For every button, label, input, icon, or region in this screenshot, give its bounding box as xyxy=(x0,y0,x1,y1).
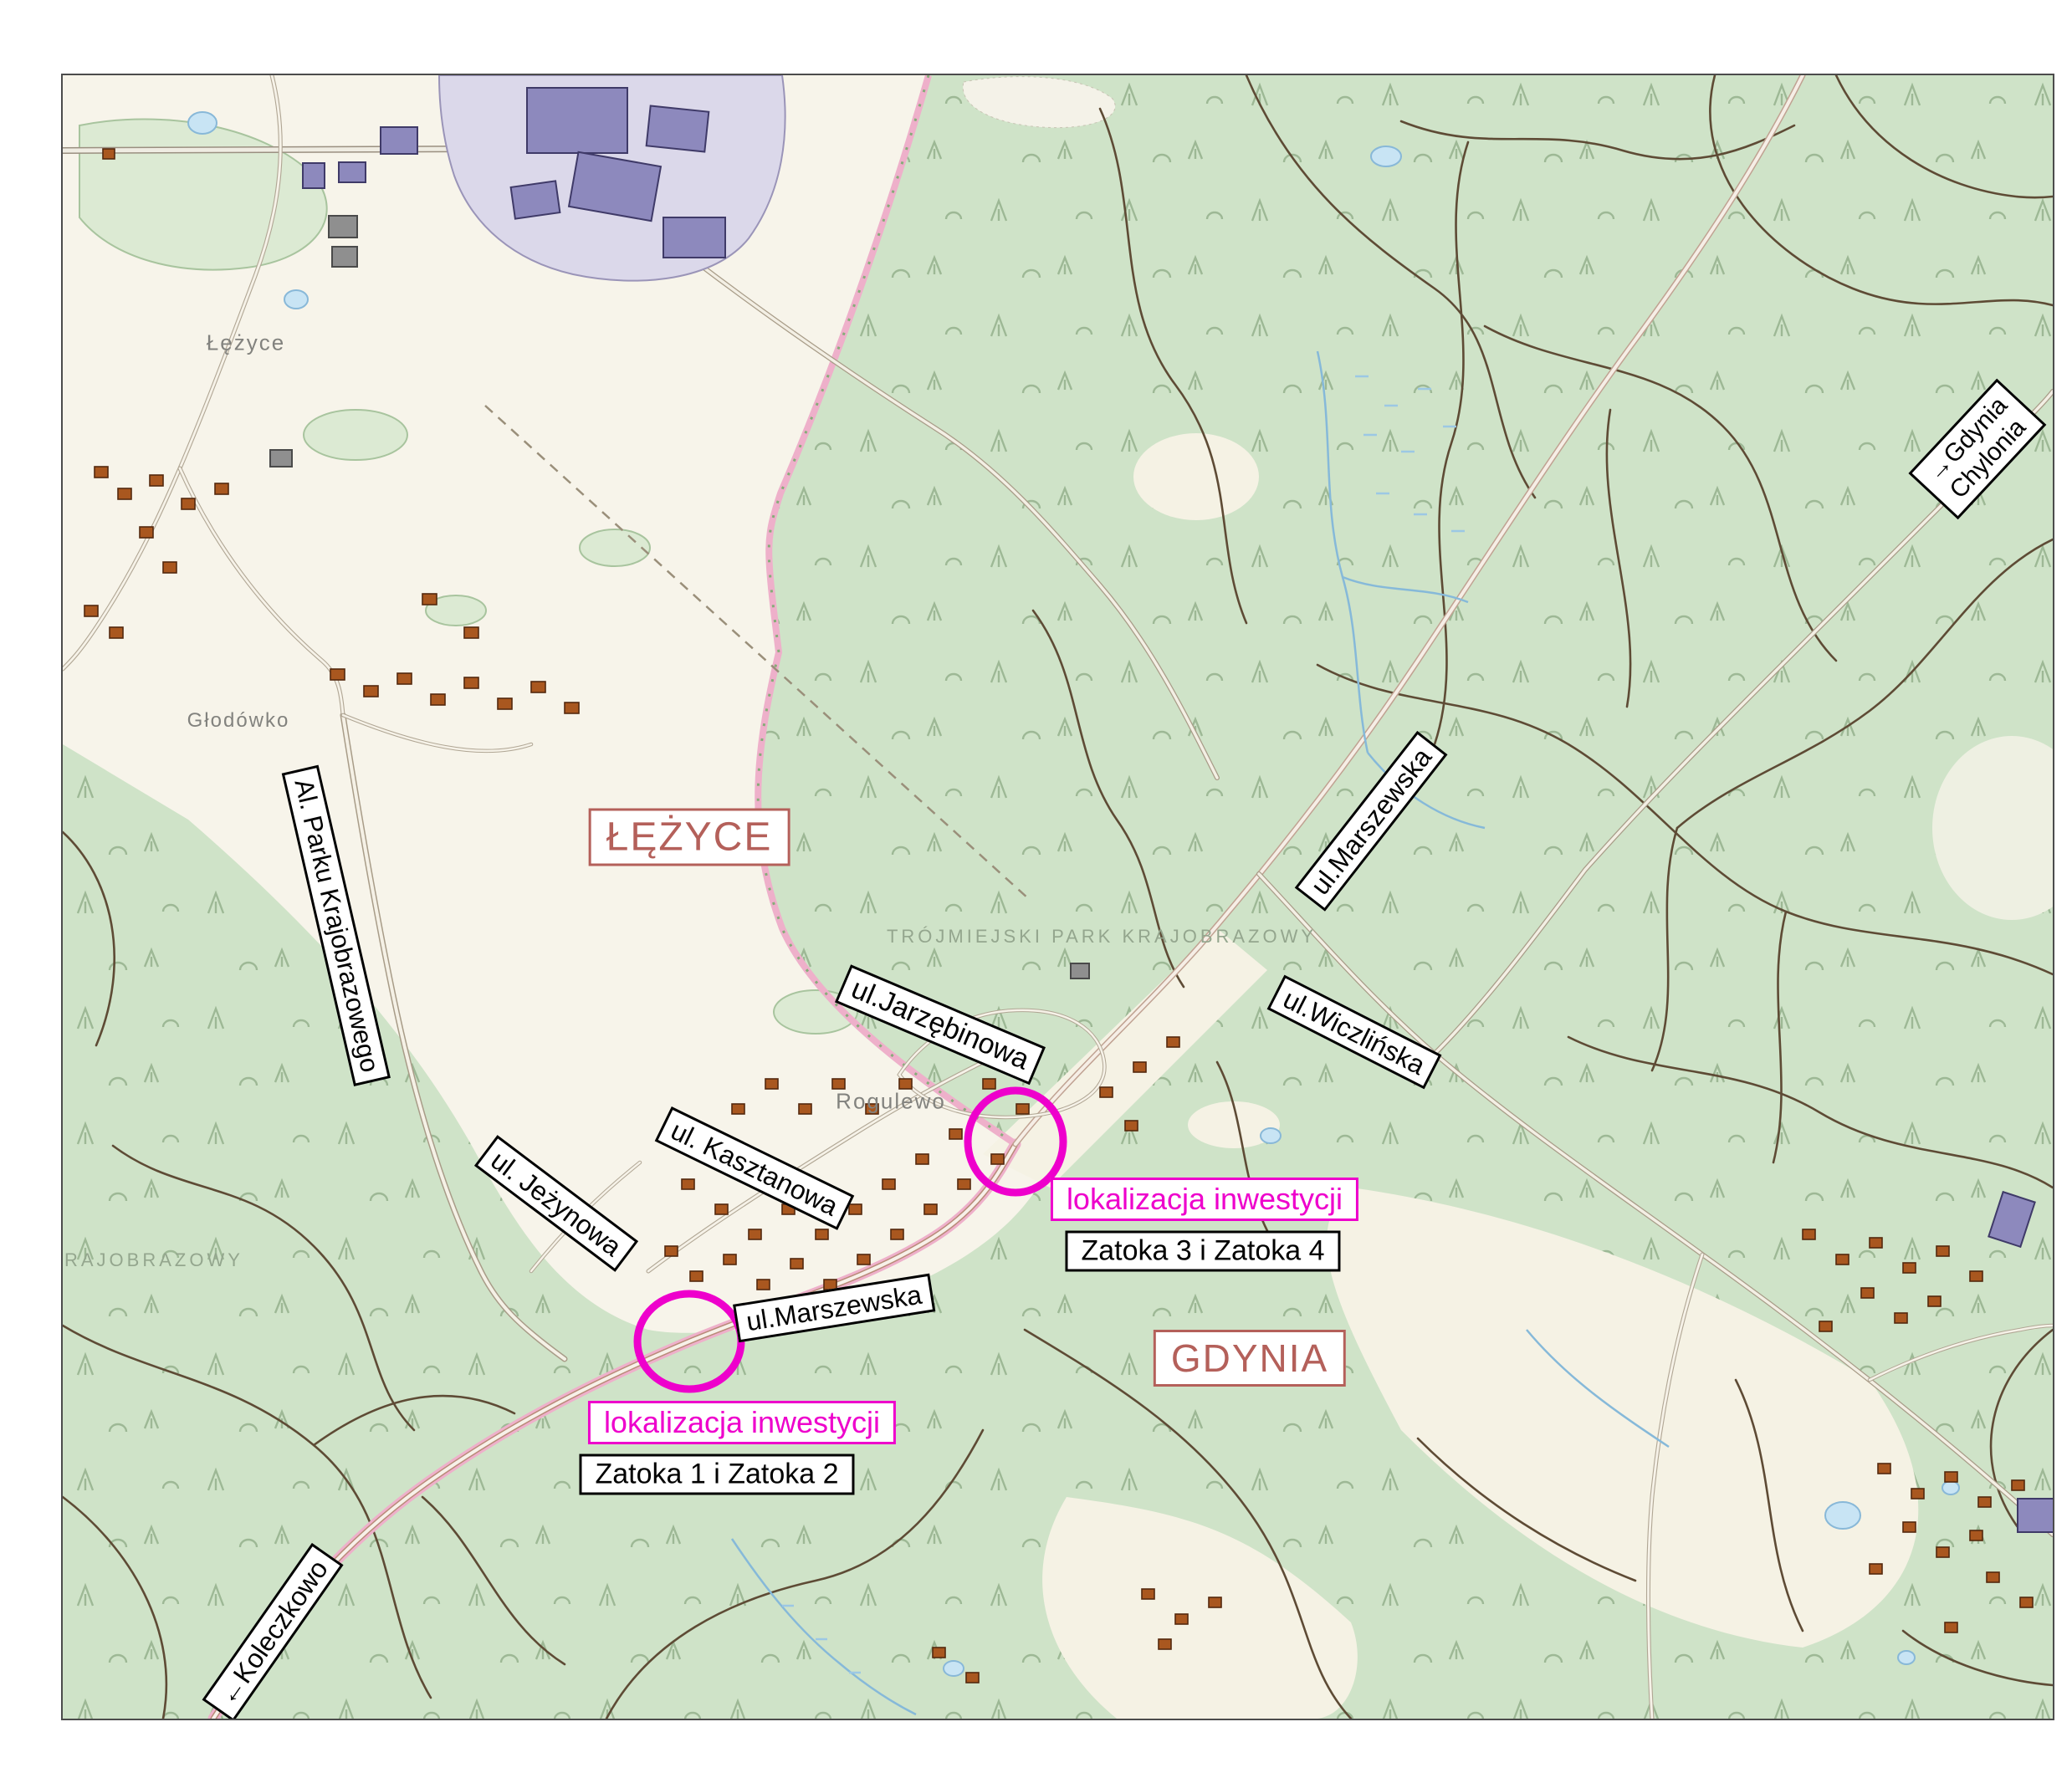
city-label-lezyce: ŁĘŻYCE xyxy=(589,809,790,866)
village-label-lezyce: Łężyce xyxy=(207,330,285,356)
scanned-map-page: Łężyce Głodówko Rogulewo TRÓJMIEJSKI PAR… xyxy=(0,0,2072,1778)
park-name-partial-label: RAJOBRAZOWY xyxy=(64,1249,243,1271)
village-label-rogulewo: Rogulewo xyxy=(836,1089,946,1115)
map-frame: Łężyce Głodówko Rogulewo TRÓJMIEJSKI PAR… xyxy=(61,74,2054,1720)
investment-sublabel-zatoka-3-4: Zatoka 3 i Zatoka 4 xyxy=(1065,1231,1340,1272)
village-label-glodowko: Głodówko xyxy=(187,709,290,733)
map-canvas xyxy=(63,75,2053,1719)
investment-label-2: lokalizacja inwestycji xyxy=(1051,1178,1358,1221)
investment-sublabel-zatoka-1-2: Zatoka 1 i Zatoka 2 xyxy=(579,1454,854,1495)
park-name-label: TRÓJMIEJSKI PARK KRAJOBRAZOWY xyxy=(887,926,1317,948)
investment-label-1: lokalizacja inwestycji xyxy=(588,1401,896,1444)
city-label-gdynia: GDYNIA xyxy=(1154,1330,1346,1387)
